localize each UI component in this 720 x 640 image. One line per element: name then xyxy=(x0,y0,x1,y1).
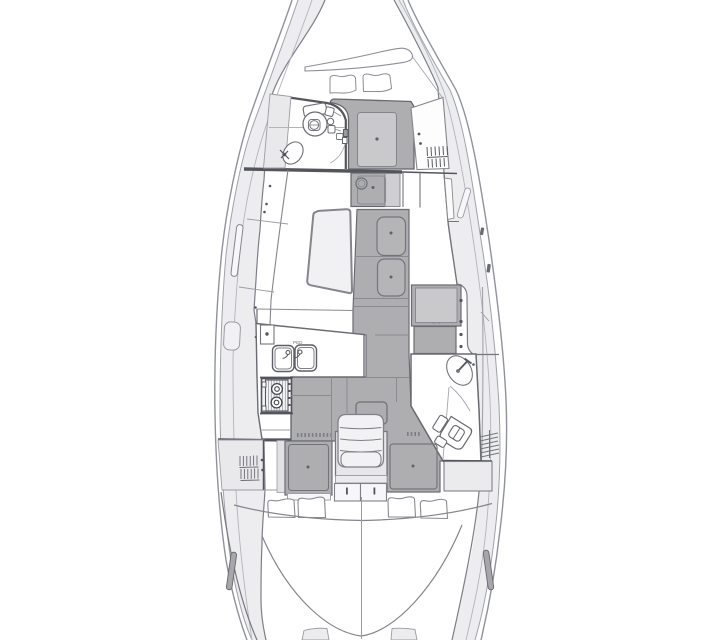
svg-text:PED: PED xyxy=(293,340,303,345)
